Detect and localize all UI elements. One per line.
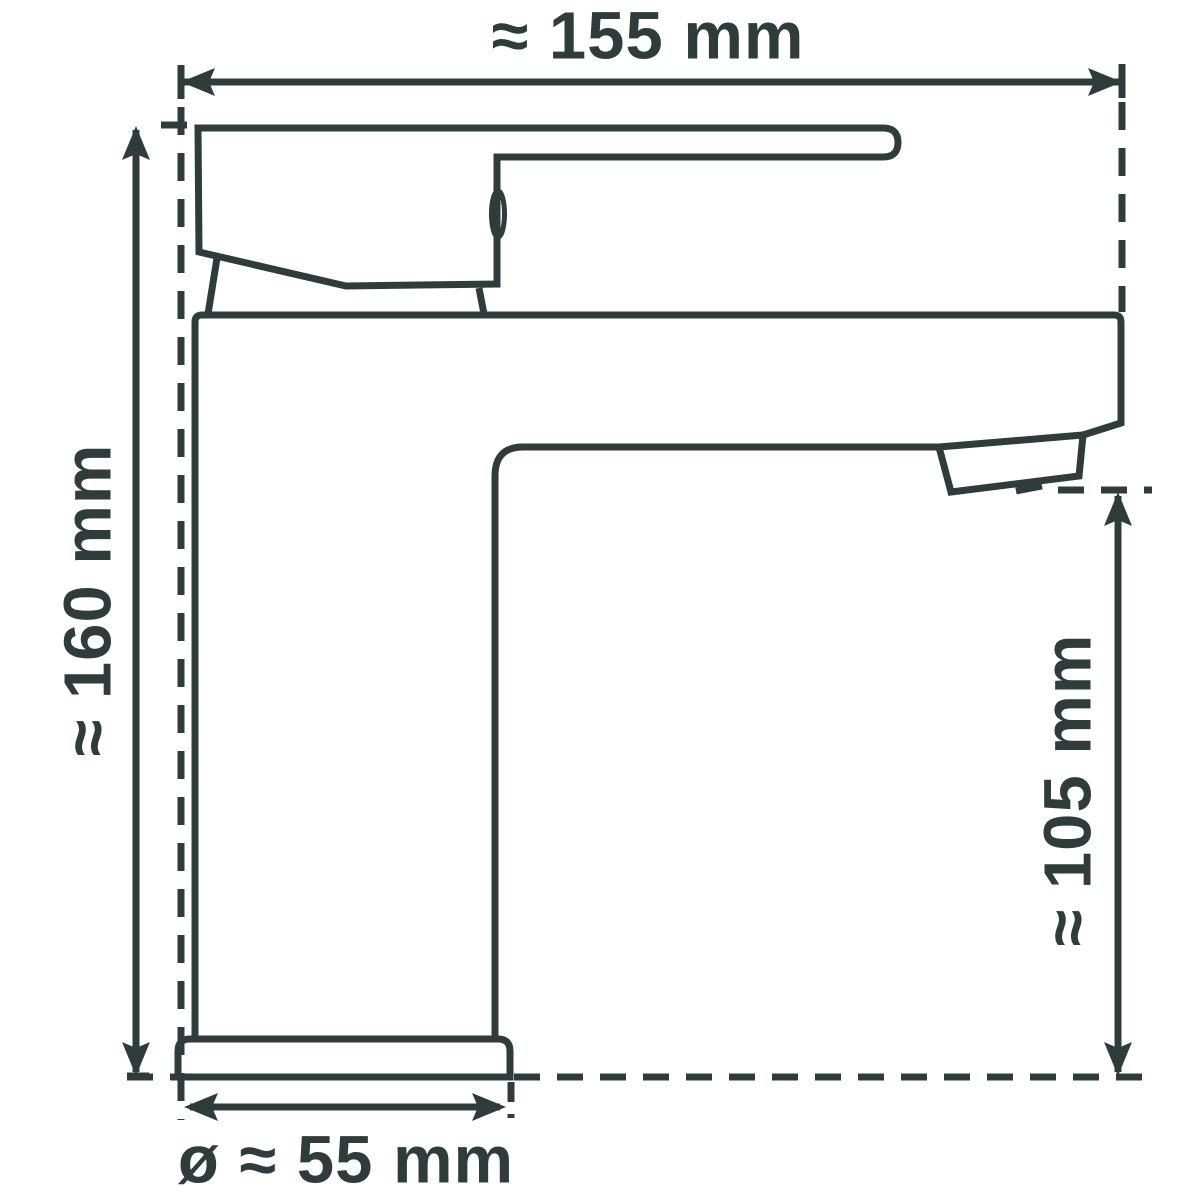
- base-diameter-dimension-label: ø ≈ 55 mm: [178, 1123, 514, 1198]
- height-dimension: ≈ 160 mm: [51, 125, 188, 1076]
- faucet-body-outline: [195, 315, 1121, 1039]
- handle-neck-left-edge: [208, 258, 217, 314]
- faucet-outline: [178, 128, 1121, 1077]
- faucet-underside-outline: [495, 447, 939, 1039]
- height-dimension-label: ≈ 160 mm: [51, 444, 126, 757]
- base-flange-outline: [178, 1039, 510, 1077]
- spout-aerator-line: [1016, 486, 1042, 491]
- handle-lever-outline: [198, 128, 898, 286]
- spout-height-dimension-label: ≈ 105 mm: [1031, 634, 1106, 947]
- handle-neck-right-edge: [479, 288, 484, 314]
- spout-tip-outline: [939, 435, 1083, 492]
- width-dimension: ≈ 155 mm: [181, 0, 1122, 99]
- width-dimension-label: ≈ 155 mm: [492, 0, 805, 74]
- spout-height-dimension: ≈ 105 mm: [1031, 492, 1133, 1076]
- faucet-technical-drawing: ≈ 155 mm ≈ 160 mm ≈ 105 mm ø ≈ 55 mm: [0, 0, 1200, 1200]
- base-diameter-dimension: ø ≈ 55 mm: [178, 1093, 514, 1198]
